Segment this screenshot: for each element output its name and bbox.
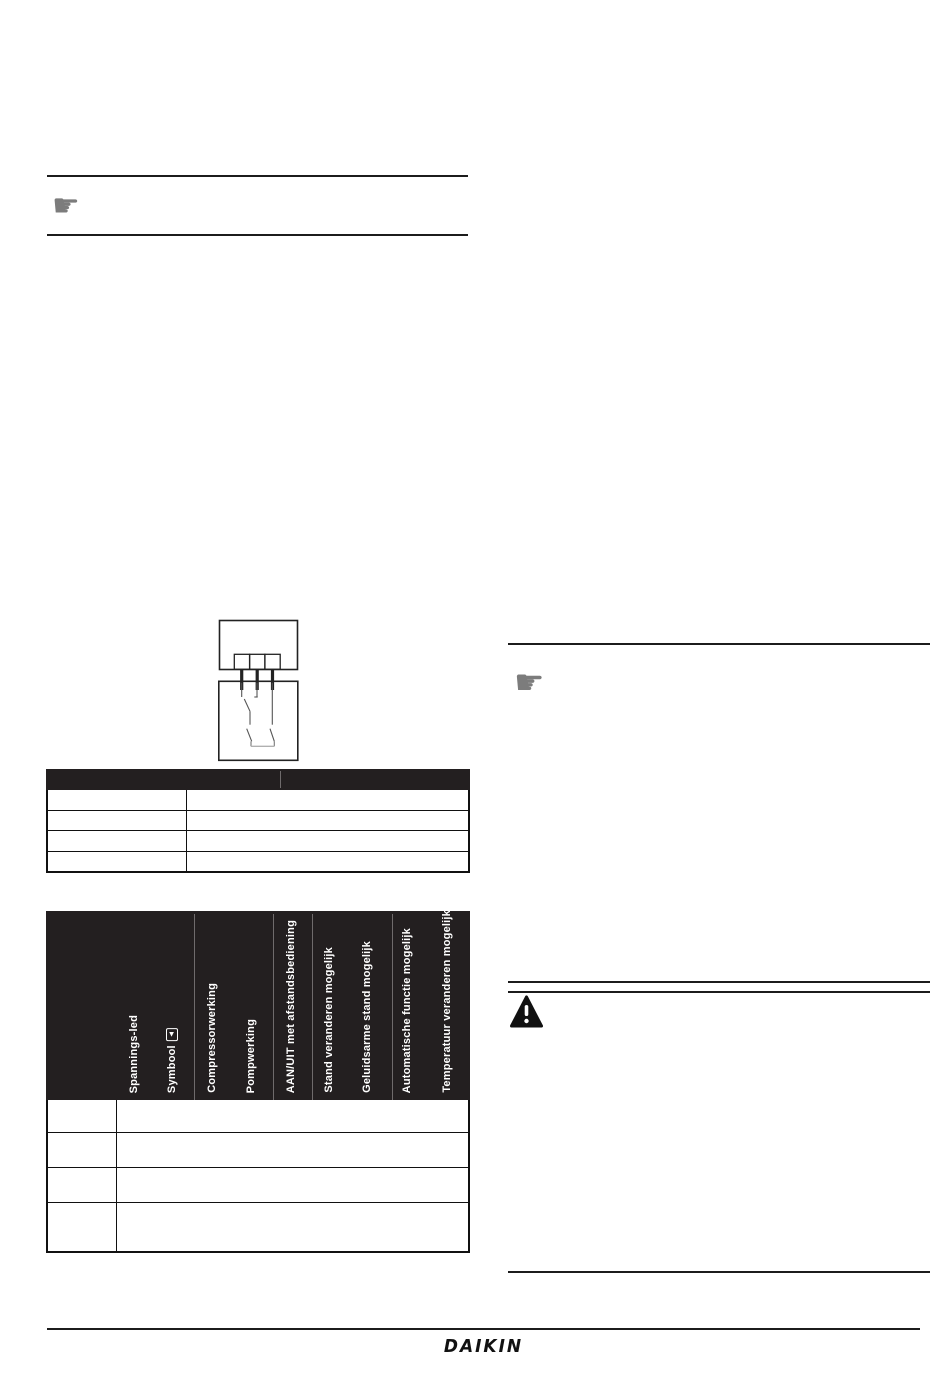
column-header-stand-veranderen: Stand veranderen mogelijk xyxy=(323,947,335,1093)
switch-blade-2 xyxy=(247,729,252,742)
table-cell xyxy=(187,831,468,851)
table-cell xyxy=(117,1100,468,1132)
switch-box xyxy=(219,681,298,760)
table-cell xyxy=(187,811,468,831)
table-cell xyxy=(187,852,468,872)
switch-blade-3 xyxy=(270,729,274,742)
table-cell xyxy=(48,1133,117,1168)
table-cell xyxy=(117,1203,468,1252)
manual-page: ☛ xyxy=(0,0,950,1379)
daikin-logo: DAIKIN xyxy=(47,1337,920,1358)
header-divider xyxy=(273,914,274,1100)
column-header-automatische-functie: Automatische functie mogelijk xyxy=(401,928,413,1093)
table-row xyxy=(48,1100,468,1132)
table-cell xyxy=(48,1100,117,1132)
table-cell xyxy=(117,1168,468,1202)
table-cell xyxy=(48,1203,117,1252)
table-cell xyxy=(117,1133,468,1168)
column-header-compressorwerking: Compressorwerking xyxy=(206,983,218,1093)
table-row xyxy=(48,830,468,851)
table-row xyxy=(48,790,468,810)
connection-table xyxy=(46,769,470,873)
table-row xyxy=(48,1132,468,1168)
table-cell xyxy=(48,831,187,851)
separator-rule-top-2 xyxy=(47,234,468,236)
column-header-spannings-led: Spannings-led xyxy=(128,1015,140,1093)
header-divider xyxy=(312,914,313,1100)
separator-rule-right-2b xyxy=(508,991,930,993)
status-table-header: Spannings-led Symbool▲ Compressorwerking… xyxy=(46,911,470,1100)
column-header-geluidsarme-stand: Geluidsarme stand mogelijk xyxy=(361,941,373,1093)
separator-rule-top-1 xyxy=(47,175,468,177)
table-cell xyxy=(187,790,468,810)
table-row xyxy=(48,851,468,872)
remote-switch-wiring-diagram xyxy=(218,618,300,763)
header-divider xyxy=(392,914,393,1100)
table-row xyxy=(48,1202,468,1252)
header-divider xyxy=(280,771,281,788)
table-row xyxy=(48,1167,468,1202)
column-header-temperatuur-veranderen: Temperatuur veranderen mogelijk xyxy=(441,910,453,1093)
connection-table-header xyxy=(46,769,470,790)
status-table: Spannings-led Symbool▲ Compressorwerking… xyxy=(46,911,470,1253)
note-icon: ☛ xyxy=(514,666,544,700)
terminal-block-box xyxy=(220,621,298,670)
warning-triangle-icon xyxy=(510,995,543,1030)
table-cell xyxy=(48,1168,117,1202)
table-cell xyxy=(48,852,187,872)
table-cell xyxy=(48,811,187,831)
column-header-label: Symbool xyxy=(166,1045,178,1093)
footer-rule xyxy=(47,1328,920,1330)
column-header-symbool: Symbool▲ xyxy=(166,1028,178,1093)
column-header-aan-uit: AAN/UIT met afstandsbediening xyxy=(285,920,297,1093)
note-icon: ☛ xyxy=(52,191,80,222)
separator-rule-right-3 xyxy=(508,1271,930,1273)
separator-rule-right-2a xyxy=(508,981,930,983)
header-divider xyxy=(194,914,195,1100)
separator-rule-right-1 xyxy=(508,643,930,645)
table-cell xyxy=(48,790,187,810)
operation-symbol-icon: ▲ xyxy=(166,1028,178,1041)
switch-blade-1 xyxy=(244,699,250,711)
column-header-pompwerking: Pompwerking xyxy=(245,1019,257,1093)
table-row xyxy=(48,810,468,831)
